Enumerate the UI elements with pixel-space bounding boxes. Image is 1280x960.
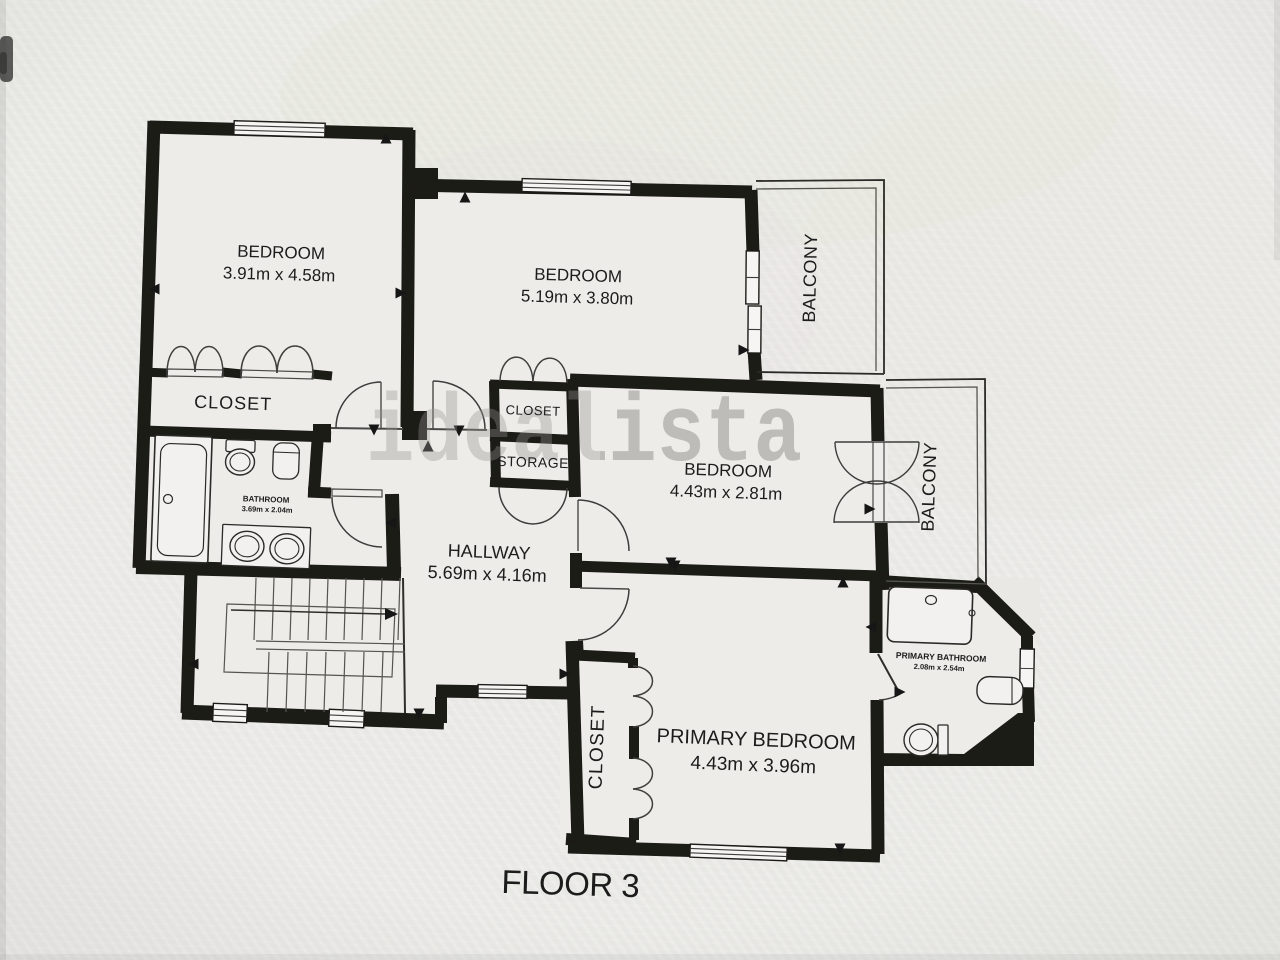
svg-text:BEDROOM: BEDROOM (237, 242, 325, 263)
svg-text:HALLWAY: HALLWAY (448, 541, 531, 564)
svg-text:4.43m x 2.81m: 4.43m x 2.81m (670, 481, 783, 504)
svg-text:BATHROOM: BATHROOM (243, 494, 290, 505)
svg-text:BALCONY: BALCONY (799, 233, 821, 323)
svg-text:STORAGE: STORAGE (497, 453, 569, 471)
svg-text:5.69m x 4.16m: 5.69m x 4.16m (427, 562, 547, 586)
svg-text:BEDROOM: BEDROOM (534, 265, 622, 286)
svg-text:FLOOR 3: FLOOR 3 (501, 863, 640, 904)
svg-text:BALCONY: BALCONY (917, 442, 940, 532)
svg-text:CLOSET: CLOSET (505, 402, 560, 419)
svg-text:CLOSET: CLOSET (194, 392, 273, 414)
svg-text:CLOSET: CLOSET (586, 704, 610, 790)
svg-text:BEDROOM: BEDROOM (684, 460, 772, 482)
svg-text:5.19m x 3.80m: 5.19m x 3.80m (521, 286, 634, 308)
svg-text:3.91m x 4.58m: 3.91m x 4.58m (223, 263, 336, 285)
svg-text:3.69m x 2.04m: 3.69m x 2.04m (242, 504, 293, 515)
